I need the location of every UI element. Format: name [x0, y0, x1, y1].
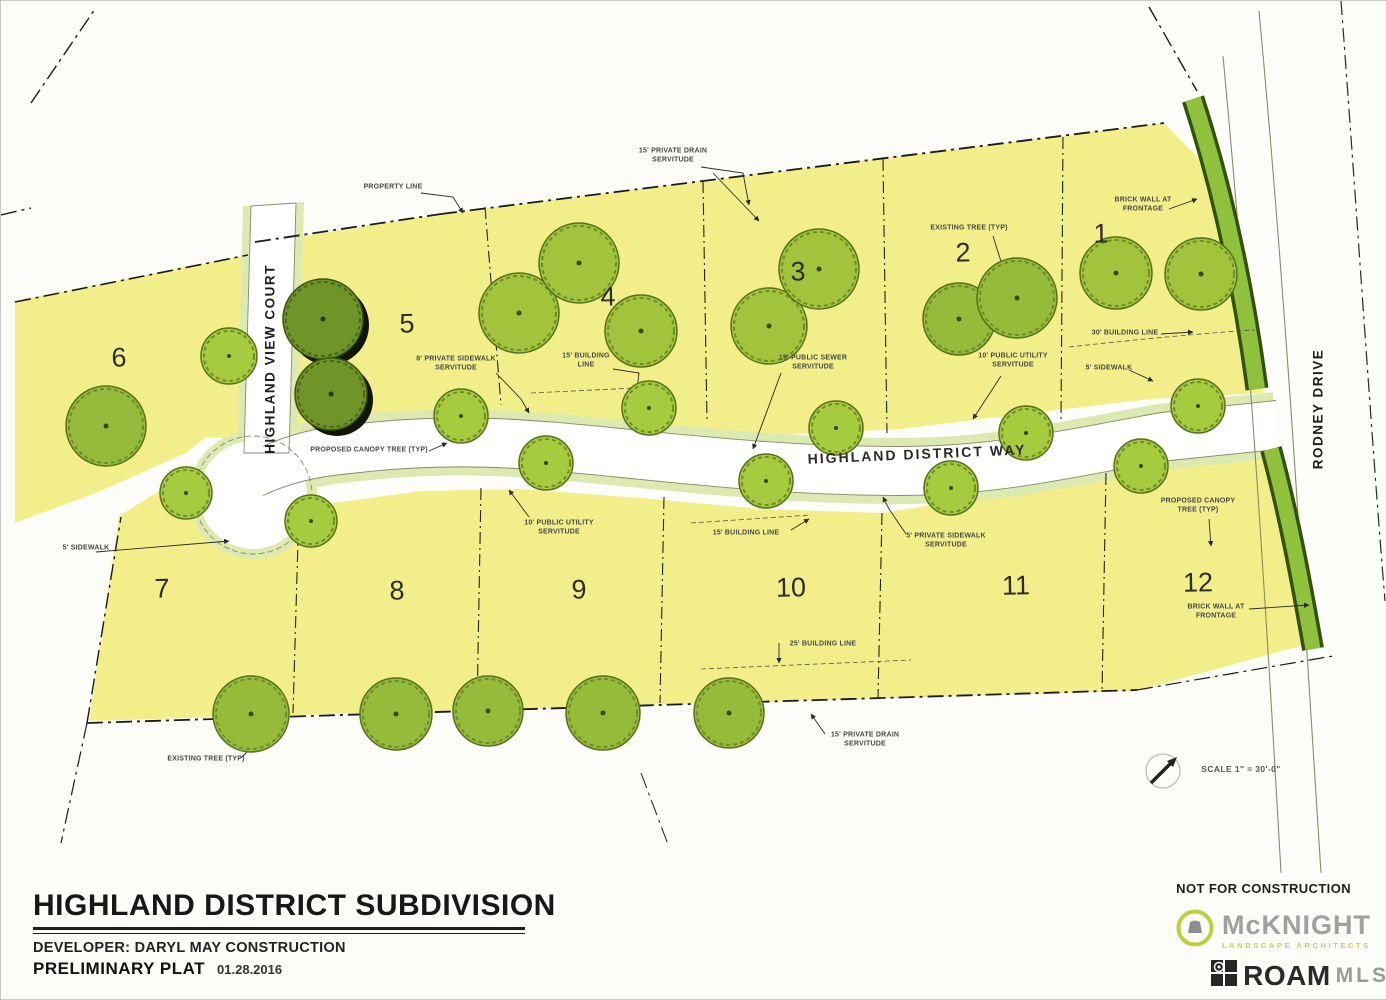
roam-logo-suffix: MLS — [1336, 965, 1386, 986]
tree-icon — [739, 454, 793, 508]
lot-number-5: 5 — [399, 308, 415, 339]
tree-icon — [201, 328, 257, 384]
tree-icon — [434, 389, 488, 443]
roam-logo-icon — [1210, 959, 1238, 992]
tree-icon — [622, 381, 676, 435]
north-arrow-icon — [1146, 754, 1180, 788]
tree-icon — [360, 678, 432, 750]
mcknight-logo: McKNIGHT LANDSCAPE ARCHITECTS — [1176, 909, 1371, 952]
lot-number-8: 8 — [389, 575, 405, 606]
tree-icon — [160, 467, 212, 519]
tree-icon — [1171, 379, 1225, 433]
lot-number-4: 4 — [600, 281, 616, 312]
plat-date: 01.28.2016 — [217, 962, 282, 977]
tree-icon — [519, 436, 573, 490]
lot-number-12: 12 — [1183, 567, 1214, 599]
roam-mls-logo: ROAM MLS — [1210, 959, 1386, 992]
roam-logo-name: ROAM — [1243, 962, 1331, 990]
developer-line: DEVELOPER: DARYL MAY CONSTRUCTION — [33, 940, 593, 956]
plat-sheet: HIGHLAND VIEW COURT HIGHLAND DISTRICT WA… — [0, 0, 1386, 1000]
plat-map: HIGHLAND VIEW COURT HIGHLAND DISTRICT WA… — [1, 1, 1386, 881]
tree-icon — [809, 401, 863, 455]
not-for-construction-stamp: NOT FOR CONSTRUCTION — [1176, 881, 1351, 896]
tree-icon — [605, 295, 677, 367]
tree-icon — [1080, 237, 1152, 309]
tree-icon — [1165, 238, 1237, 310]
page-title: HIGHLAND DISTRICT SUBDIVISION — [33, 889, 593, 923]
mcknight-logo-tagline: LANDSCAPE ARCHITECTS — [1222, 941, 1371, 950]
lot-number-3: 3 — [790, 256, 806, 287]
tree-icon — [924, 461, 978, 515]
lot-number-1: 1 — [1093, 218, 1109, 249]
tree-icon — [977, 258, 1057, 338]
mcknight-logo-name: McKNIGHT — [1222, 912, 1371, 939]
lot-number-6: 6 — [111, 342, 127, 373]
tree-icon — [453, 676, 523, 746]
tree-icon — [1114, 439, 1168, 493]
title-rule — [33, 927, 525, 934]
tree-icon — [66, 386, 146, 466]
tree-icon — [566, 676, 640, 750]
street-label-highland-view-court: HIGHLAND VIEW COURT — [263, 264, 278, 454]
lot-number-2: 2 — [955, 237, 971, 268]
lot-number-10: 10 — [776, 572, 807, 604]
mcknight-logo-icon — [1176, 909, 1214, 952]
lot-number-7: 7 — [154, 573, 170, 604]
plat-drawing — [1, 1, 1386, 881]
title-block: HIGHLAND DISTRICT SUBDIVISION DEVELOPER:… — [33, 889, 593, 979]
lot-number-11: 11 — [1002, 570, 1031, 601]
street-label-rodney-drive: RODNEY DRIVE — [1311, 349, 1326, 470]
tree-icon — [213, 676, 289, 752]
plat-type-label: PRELIMINARY PLAT — [33, 959, 205, 979]
tree-icon — [694, 678, 764, 748]
tree-icon — [285, 495, 337, 547]
lot-number-9: 9 — [571, 574, 587, 605]
scale-note: SCALE 1" = 30'-0" — [1201, 764, 1280, 774]
